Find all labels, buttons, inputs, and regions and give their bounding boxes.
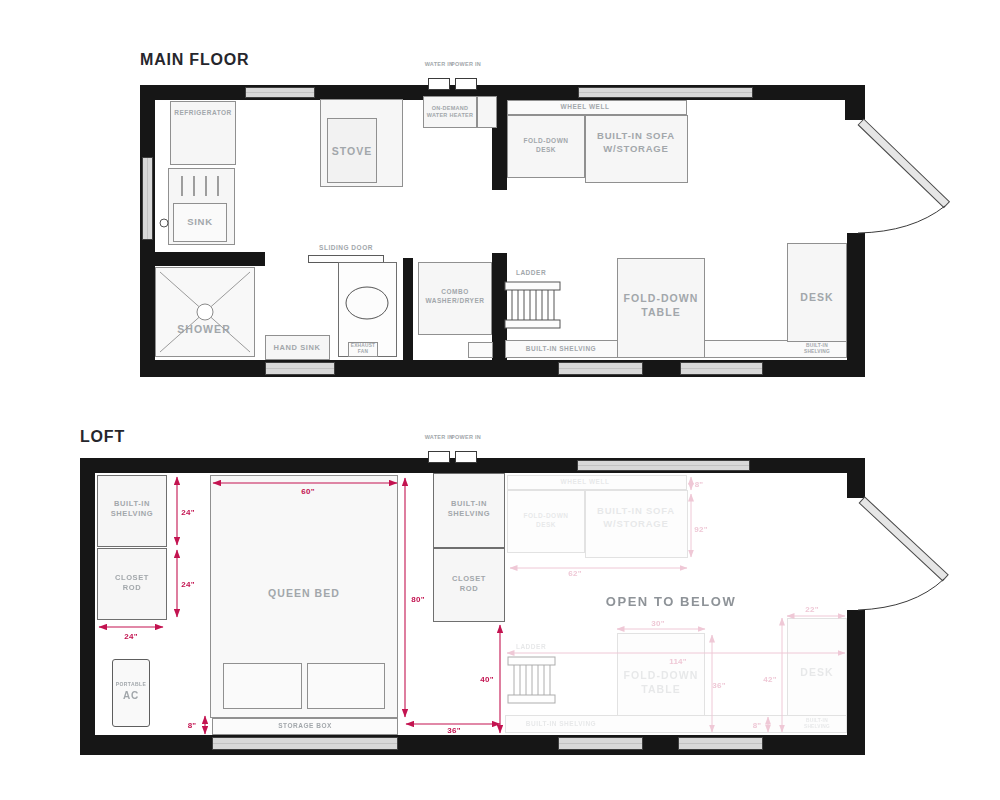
window [577,460,750,471]
queen-bed-label: QUEEN BED [268,586,340,600]
ghost-desk [787,618,847,717]
loft-closet-left-label: CLOSET ROD [108,573,156,593]
loft-ladder-icon [508,657,555,703]
wall-right [847,233,865,377]
main-floor-plan: WATER IN POWER IN REFRIGERATOR SINK STOV… [140,85,865,377]
window [558,737,643,750]
fold-down-table-label: FOLD-DOWN TABLE [621,291,701,319]
wall-right [847,610,865,755]
window [212,737,398,750]
desk-shelving-label: BUILT-IN SHELVING [796,343,838,356]
shower-box [155,267,255,357]
sliding-door-label: SLIDING DOOR [319,244,373,253]
loft-shelving-center-label: BUILT-IN SHELVING [440,499,498,519]
wall-right-top-stub [847,458,865,498]
ghost-fold-down-table-label: FOLD-DOWN TABLE [621,668,701,696]
water-in-label: WATER IN [424,434,454,441]
portable-ac-label-line1: PORTABLE [116,681,146,688]
stove-label: STOVE [332,144,373,158]
ghost-sofa [585,490,688,558]
power-inlet [455,451,477,463]
ghost-dim-wheel-height: 8" [695,480,704,489]
main-floor-title: MAIN FLOOR [140,51,249,69]
ghost-dim-shelf-height: 8" [753,721,762,730]
ghost-fold-down-desk-label: FOLD-DOWN DESK [516,512,576,530]
desk-label: DESK [800,290,833,304]
open-to-below-label: OPEN TO BELOW [606,594,737,609]
water-heater-label: ON-DEMAND WATER HEATER [425,105,475,120]
wall-bathroom-right [403,258,413,360]
ghost-wheel-well [507,475,687,490]
dim-closet-height: 24" [181,580,194,589]
ghost-dim-open-length: 114" [669,657,687,666]
faucet-icon [160,219,168,227]
ghost-dim-table-height: 36" [712,681,725,690]
ghost-fold-down-table [617,633,705,733]
cabinet-box [477,96,497,128]
ghost-wheel-well-label: WHEEL WELL [561,478,610,487]
loft-shelving-left-label: BUILT-IN SHELVING [103,499,161,519]
ghost-dim-table-width: 30" [651,619,664,628]
sofa-label: BUILT-IN SOFA W/STORAGE [589,130,684,156]
dim-bed-width: 60" [301,487,314,496]
ghost-shelving-label: BUILT-IN SHELVING [526,720,596,729]
window [142,157,153,240]
loft-closet-center-label: CLOSET ROD [445,574,493,594]
power-in-label: POWER IN [451,434,481,441]
ghost-dim-sofa-length: 92" [694,525,707,534]
ladder-icon [505,282,560,328]
ghost-desk-shelving-label: BUILT-IN SHELVING [796,718,838,731]
portable-ac-label-line2: AC [123,689,139,703]
shelving-segment [468,342,493,358]
refrigerator-label: REFRIGERATOR [174,109,232,118]
ghost-dim-sofa-width: 62" [568,569,581,578]
sink-label: SINK [187,216,213,229]
entry-door-icon [858,497,948,610]
dim-walkway-height: 40" [480,675,493,684]
toilet-label: TOILET [354,299,380,308]
ladder-label: LADDER [516,269,546,278]
shower-label: SHOWER [177,322,231,336]
dim-walkway-width: 36" [447,726,460,735]
ghost-shelving-strip [505,715,847,733]
ghost-dim-desk-width: 22" [805,605,818,614]
bed-pillow [223,663,302,709]
ghost-desk-label: DESK [800,665,833,679]
power-inlet [455,78,477,90]
window [578,87,753,98]
ghost-sofa-label: BUILT-IN SOFA W/STORAGE [589,505,684,531]
wall-bathroom [140,252,265,266]
ghost-fold-down-desk [507,490,585,553]
power-in-label: POWER IN [451,61,481,68]
loft-plan: WATER IN POWER IN WHEEL WELL FOLD-DOWN D… [80,458,865,755]
dim-closet-width: 24" [124,632,137,641]
hand-sink-label: HAND SINK [273,343,320,353]
dim-bed-length: 80" [411,595,424,604]
window [265,362,335,375]
water-inlet [428,451,450,463]
water-in-label: WATER IN [424,61,454,68]
ghost-ladder-label: LADDER [516,643,546,652]
washer-dryer-label: COMBO WASHER/DRYER [420,288,490,306]
window [558,362,643,375]
window [680,362,763,375]
storage-box-label: STORAGE BOX [278,722,332,731]
wheel-well-label: WHEEL WELL [561,103,610,112]
entry-door-icon [858,119,949,233]
ghost-dim-desk-gap: 42" [763,675,776,684]
fold-down-desk-label: FOLD-DOWN DESK [516,137,576,155]
dim-shelf-height: 24" [181,508,194,517]
water-inlet [428,78,450,90]
dim-storage-height: 8" [188,721,197,730]
bed-pillow [307,663,385,709]
wall-right-top-stub [845,85,865,120]
wall-left [80,458,95,755]
window [678,737,763,750]
shelving-label: BUILT-IN SHELVING [526,345,596,354]
loft-title: LOFT [80,428,125,446]
exhaust-fan-label: EXHAUST FAN [349,343,377,356]
window [245,87,315,98]
